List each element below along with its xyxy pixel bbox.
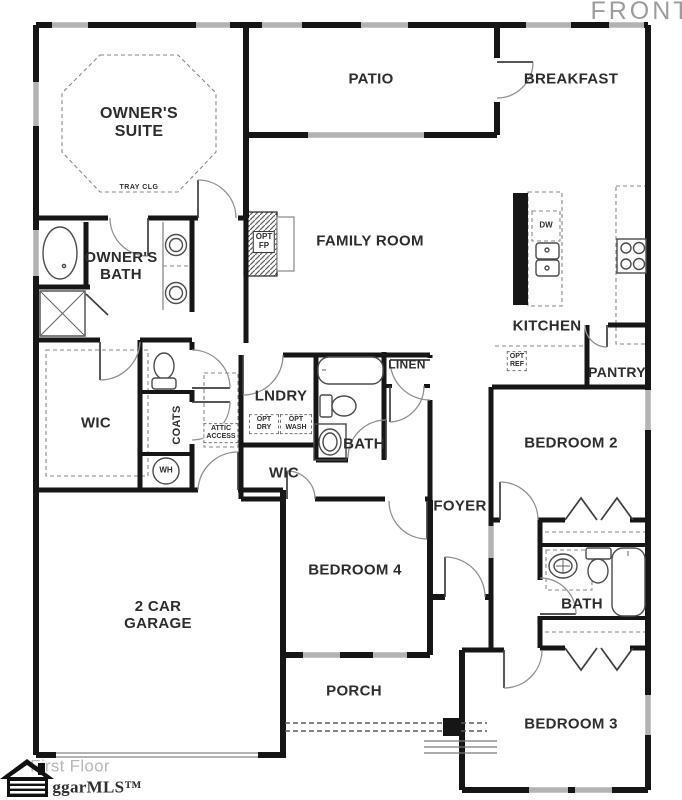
room-label-owners-suite: OWNER'S SUITE [100, 105, 178, 141]
tray-ceiling-label: TRAY CLG [119, 184, 158, 192]
room-label-wic: WIC [81, 416, 111, 433]
porch-post [443, 718, 459, 736]
owners-bath-line2: BATH [84, 267, 157, 284]
opt-washer-label: OPT WASH [280, 414, 312, 434]
room-label-bedroom4: BEDROOM 4 [308, 563, 402, 580]
opt-dryer-label: OPT DRY [249, 414, 279, 434]
kitchen-sink-2 [536, 260, 559, 276]
mls-watermark-text: ggarMLS™ [52, 777, 141, 796]
opt-wash-line2: WASH [283, 424, 309, 432]
range [617, 239, 646, 273]
attic-access-label: ATTIC ACCESS [203, 423, 238, 443]
garden-tub [43, 227, 77, 279]
owners-bath-line1: OWNER'S [84, 250, 157, 267]
shower-door [86, 294, 108, 315]
attic-line2: ACCESS [206, 433, 235, 441]
room-label-wic2: WIC [269, 466, 299, 483]
room-label-bath2: BATH [561, 597, 603, 614]
water-heater-label: WH [159, 467, 172, 476]
opt-ref-line2: REF [510, 361, 524, 369]
room-label-laundry: LNDRY [255, 389, 308, 406]
room-label-family-room: FAMILY ROOM [316, 234, 423, 251]
attic-line1: ATTIC [206, 425, 235, 433]
opt-fireplace-label: OPT FP [253, 231, 275, 253]
room-label-patio: PATIO [348, 72, 393, 89]
owners-toilet [154, 353, 174, 379]
room-label-bedroom2: BEDROOM 2 [524, 436, 618, 453]
room-label-coats: COATS [171, 405, 183, 444]
bath-toilet [332, 396, 356, 416]
hall-toilet-tank [586, 548, 611, 559]
room-label-pantry: PANTRY [588, 365, 646, 381]
opt-fp-line2: FP [256, 242, 272, 251]
opt-refrigerator-label: OPT REF [507, 351, 527, 371]
bath-toilet-tank [320, 395, 332, 417]
owners-suite-line2: SUITE [100, 123, 178, 141]
kitchen-sink-1 [536, 243, 559, 259]
room-label-garage: 2 CAR GARAGE [124, 599, 192, 633]
kitchen-island-wall [513, 193, 528, 305]
room-label-kitchen: KITCHEN [513, 319, 582, 336]
room-label-foyer: FOYER [433, 499, 486, 516]
vanity-sink-1 [166, 235, 187, 256]
opt-ref-line1: OPT [510, 353, 524, 361]
room-label-linen: LINEN [388, 358, 426, 371]
front-orientation-label: FRONT [590, 0, 682, 25]
garage-line1: 2 CAR [124, 599, 192, 616]
room-label-porch: PORCH [326, 684, 382, 701]
hall-tub [612, 548, 645, 616]
wic-shelving [46, 350, 148, 476]
dishwasher-label: DW [539, 222, 552, 231]
floor-plan: FRONT OWNER'S SUITE TRAY CLG PATIO BREAK… [0, 0, 682, 800]
opt-dry-line1: OPT [252, 416, 276, 424]
owners-toilet-tank [152, 378, 176, 389]
room-label-bath: BATH [343, 437, 385, 454]
bath-tub [318, 357, 383, 384]
opt-wash-line1: OPT [283, 416, 309, 424]
room-label-bedroom3: BEDROOM 3 [524, 717, 618, 734]
vanity-sink-2 [166, 283, 187, 304]
room-label-breakfast: BREAKFAST [524, 72, 618, 89]
room-label-owners-bath: OWNER'S BATH [84, 250, 157, 284]
hall-toilet [588, 559, 608, 583]
opt-dry-line2: DRY [252, 424, 276, 432]
porch-railing [285, 718, 497, 753]
owners-suite-line1: OWNER'S [100, 105, 178, 123]
garage-line2: GARAGE [124, 616, 192, 633]
interior-walls-thin [140, 386, 648, 618]
